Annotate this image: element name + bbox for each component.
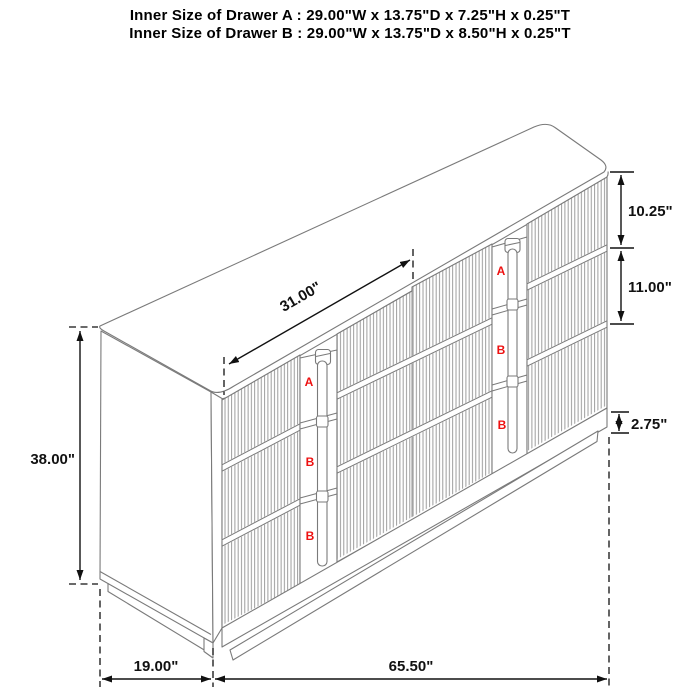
drawer-label-right-A: A bbox=[497, 264, 506, 278]
dim-base-height: 2.75" bbox=[609, 412, 667, 687]
dim-label-11-00: 11.00" bbox=[628, 279, 672, 296]
drawer-label-left-B1: B bbox=[306, 455, 315, 469]
drawer-label-left-B2: B bbox=[306, 529, 315, 543]
page: { "title": { "line1": "Inner Size of Dra… bbox=[0, 0, 700, 700]
front-left-corner-band bbox=[211, 392, 222, 643]
dim-right-drawers: 10.25" 11.00" bbox=[610, 172, 673, 324]
dim-label-65-50: 65.50" bbox=[389, 658, 434, 675]
dim-label-10-25: 10.25" bbox=[628, 203, 673, 220]
drawer-label-right-B2: B bbox=[498, 418, 507, 432]
sideboard-dimension-diagram: A B B A B B bbox=[0, 0, 700, 700]
dim-overall-height: 38.00" bbox=[30, 327, 98, 584]
left-handle-stile: A B B bbox=[300, 350, 337, 591]
right-handle-stile: A B B bbox=[492, 237, 527, 482]
drawer-label-left-A: A bbox=[305, 375, 314, 389]
dim-label-38-00: 38.00" bbox=[30, 451, 75, 468]
left-fluted-front bbox=[222, 355, 300, 628]
sideboard-drawing: A B B A B B bbox=[100, 124, 608, 660]
drawer-label-right-B1: B bbox=[497, 343, 506, 357]
dim-label-2-75: 2.75" bbox=[631, 416, 667, 433]
dim-label-19-00: 19.00" bbox=[134, 658, 179, 675]
